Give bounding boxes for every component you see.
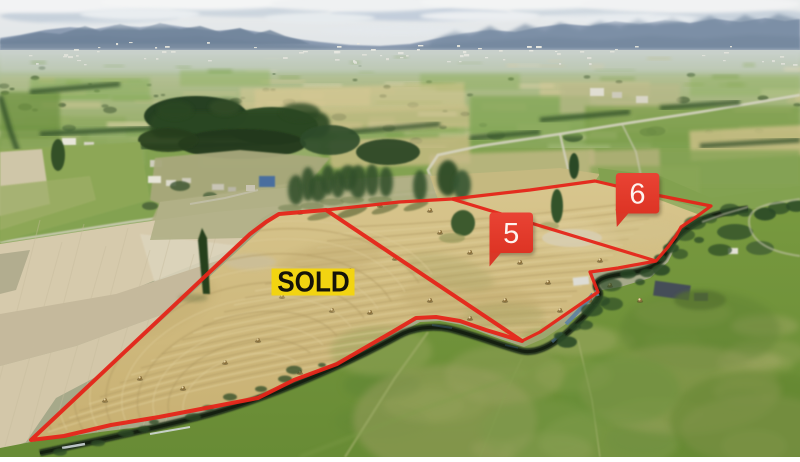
svg-text:5: 5 [503,218,519,250]
svg-text:SOLD: SOLD [277,265,349,298]
svg-text:6: 6 [629,179,645,211]
